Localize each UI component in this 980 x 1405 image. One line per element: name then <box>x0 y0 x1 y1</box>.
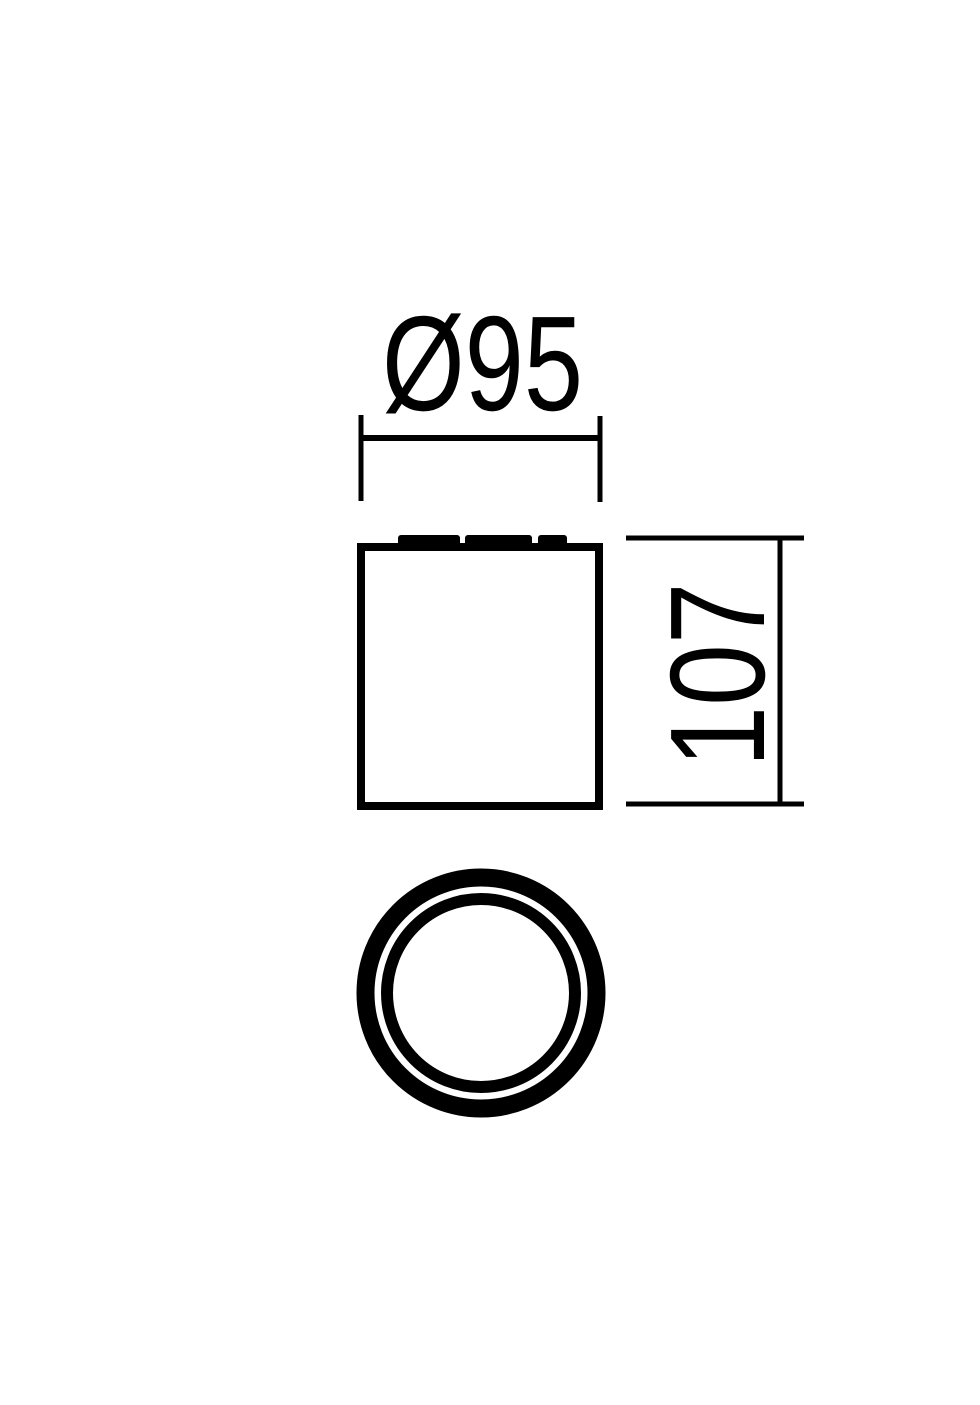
diameter-dimension: Ø95 <box>359 288 602 502</box>
height-dimension: 107 <box>626 536 804 806</box>
bottom-view-inner-ring <box>387 899 575 1087</box>
height-dimension-label: 107 <box>642 583 793 768</box>
technical-drawing-canvas: Ø95 107 <box>0 0 980 1400</box>
housing-outline <box>361 547 599 806</box>
diameter-dimension-label: Ø95 <box>382 288 583 439</box>
dimension-drawing-svg: Ø95 107 <box>0 0 980 1400</box>
side-view <box>361 535 599 806</box>
bottom-view <box>366 878 597 1109</box>
bottom-view-outer-ring <box>366 878 597 1109</box>
